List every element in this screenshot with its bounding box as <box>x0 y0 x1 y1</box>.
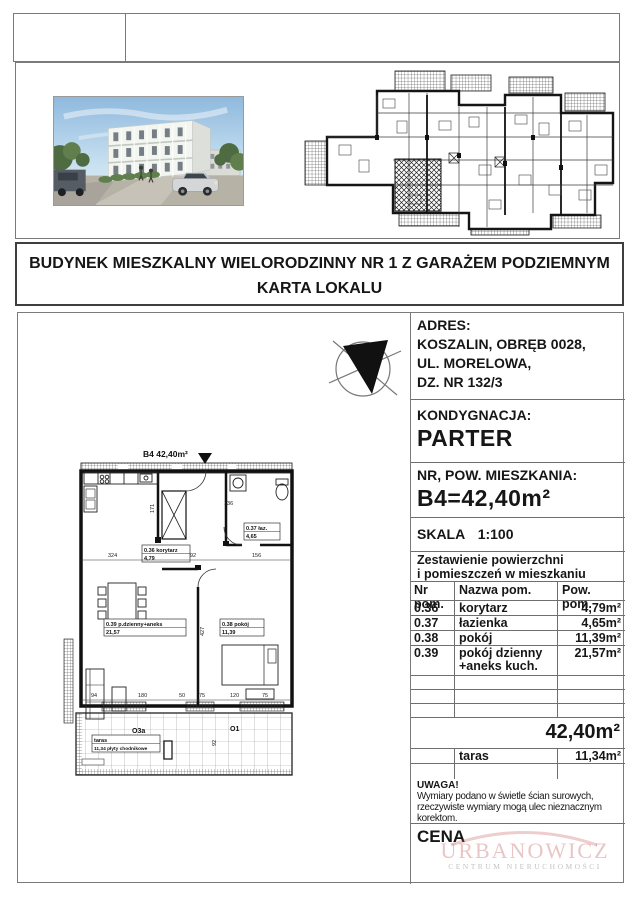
svg-text:94: 94 <box>91 693 97 699</box>
main-frame: B4 42,40m² <box>17 312 624 883</box>
svg-text:92: 92 <box>190 553 196 559</box>
scale-label: SKALA <box>417 526 465 542</box>
note-label: UWAGA! <box>417 780 619 791</box>
svg-text:75: 75 <box>262 693 268 699</box>
address-line: UL. MORELOWA, <box>417 354 619 373</box>
side-balcony-wall <box>64 639 73 723</box>
label-lazienka: 0.37 łaz. 4,65 <box>244 523 280 540</box>
svg-text:156: 156 <box>252 553 261 559</box>
label-taras: taras 11,34 płyty chodnikowe <box>92 735 160 752</box>
svg-text:171: 171 <box>150 504 156 513</box>
table-row-taras: taras 11,34m² <box>411 749 625 764</box>
page: BUDYNEK MIESZKALNY WIELORODZINNY NR 1 Z … <box>0 0 636 900</box>
svg-text:11,34 płyty chodnikowe: 11,34 płyty chodnikowe <box>94 746 148 752</box>
watermark-subtitle: CENTRUM NIERUCHOMOŚCI <box>429 862 621 872</box>
svg-text:136: 136 <box>224 501 233 507</box>
table-header-row: Nr pom. Nazwa pom. Pow. pom. <box>411 582 625 601</box>
svg-text:427: 427 <box>200 627 206 636</box>
svg-text:92: 92 <box>212 740 218 746</box>
shaft <box>162 491 186 539</box>
highlighted-unit-b4 <box>395 159 441 211</box>
unit-box: NR, POW. MIESZKANIA: B4=42,40m² <box>411 463 625 518</box>
bedroom <box>222 645 278 699</box>
apartment-floorplan: B4 42,40m² <box>46 441 396 791</box>
svg-text:0.36 korytarz: 0.36 korytarz <box>144 548 178 554</box>
table-row-empty <box>411 676 625 690</box>
unit-value: B4=42,40m² <box>417 485 619 511</box>
floor-box: KONDYGNACJA: PARTER <box>411 400 625 463</box>
summary-line: i pomieszczeń w mieszkaniu <box>417 567 619 581</box>
note-line: rzeczywiste wymiary mogą ulec nieznaczny… <box>417 802 619 813</box>
window-label-o3a: O3a <box>132 728 145 735</box>
info-pane: ADRES: KOSZALIN, OBRĘB 0028, UL. MORELOW… <box>410 313 625 884</box>
building-floorplan-overview <box>299 65 621 236</box>
scale-value: 1:100 <box>478 526 514 542</box>
address-box: ADRES: KOSZALIN, OBRĘB 0028, UL. MORELOW… <box>411 313 625 400</box>
address-line: KOSZALIN, OBRĘB 0028, <box>417 335 619 354</box>
terrace-doors <box>102 702 284 711</box>
summary-box: Zestawienie powierzchni i pomieszczeń w … <box>411 552 625 582</box>
label-korytarz: 0.36 korytarz 4,79 <box>142 545 190 562</box>
svg-text:0.37 łaz.: 0.37 łaz. <box>246 526 268 532</box>
svg-text:75: 75 <box>199 693 205 699</box>
entrance-marker <box>198 453 212 464</box>
svg-text:0.39 p.dzienny+aneks: 0.39 p.dzienny+aneks <box>106 622 162 628</box>
title-line-2: KARTA LOKALU <box>17 276 622 301</box>
svg-text:21,57: 21,57 <box>106 630 120 636</box>
table-row: 0.37 łazienka 4,65m² <box>411 616 625 631</box>
table-row: 0.36 korytarz 4,79m² <box>411 601 625 616</box>
main-building <box>108 121 210 182</box>
media-panel <box>15 62 620 239</box>
note-box: UWAGA! Wymiary podano w świetle ścian su… <box>411 778 625 824</box>
floor-value: PARTER <box>417 425 619 451</box>
col-header-nr: Nr pom. <box>411 582 455 600</box>
table-row-empty <box>411 690 625 704</box>
summary-line: Zestawienie powierzchni <box>417 553 619 567</box>
svg-text:120: 120 <box>230 693 239 699</box>
area-table: Nr pom. Nazwa pom. Pow. pom. 0.36 koryta… <box>411 582 625 778</box>
table-row-empty <box>411 764 625 779</box>
building-photo <box>53 96 244 206</box>
svg-text:11,39: 11,39 <box>222 630 235 636</box>
north-arrow-icon <box>321 319 409 411</box>
svg-text:0.38 pokój: 0.38 pokój <box>222 622 249 628</box>
svg-text:taras: taras <box>94 738 107 744</box>
table-row: 0.39 pokój dzienny +aneks kuch. 21,57m² <box>411 646 625 676</box>
svg-text:4,79: 4,79 <box>144 556 155 562</box>
price-box: CENA URBANOWICZ CENTRUM NIERUCHOMOŚCI <box>411 824 625 884</box>
address-line: DZ. NR 132/3 <box>417 373 619 392</box>
label-dzienny: 0.39 p.dzienny+aneks 21,57 <box>104 619 186 636</box>
address-label: ADRES: <box>417 316 619 335</box>
svg-text:180: 180 <box>138 693 147 699</box>
label-pokoj: 0.38 pokój 11,39 <box>220 619 264 636</box>
table-row-empty <box>411 704 625 718</box>
document-title: BUDYNEK MIESZKALNY WIELORODZINNY NR 1 Z … <box>15 242 624 306</box>
floor-label: KONDYGNACJA: <box>417 406 619 425</box>
svg-text:4,65: 4,65 <box>246 534 257 540</box>
note-line: Wymiary podano w świetle ścian surowych, <box>417 791 619 802</box>
col-header-name: Nazwa pom. <box>455 582 558 600</box>
window-label-o1: O1 <box>230 726 239 733</box>
note-line: korektom. <box>417 813 619 824</box>
svg-text:50: 50 <box>179 693 185 699</box>
kitchen <box>84 472 158 512</box>
table-row: 0.38 pokój 11,39m² <box>411 631 625 646</box>
title-block-cell-left <box>14 14 126 61</box>
floorplan-pane: B4 42,40m² <box>18 313 410 884</box>
title-line-1: BUDYNEK MIESZKALNY WIELORODZINNY NR 1 Z … <box>17 251 622 276</box>
plan-title: B4 42,40m² <box>143 449 188 459</box>
total-area: 42,40m² <box>411 718 625 749</box>
scale-box: SKALA 1:100 <box>411 518 625 552</box>
svg-text:324: 324 <box>108 553 117 559</box>
title-block-strip <box>13 13 620 62</box>
price-label: CENA <box>417 827 619 847</box>
col-header-area: Pow. pom. <box>558 582 625 600</box>
unit-label: NR, POW. MIESZKANIA: <box>417 466 619 485</box>
